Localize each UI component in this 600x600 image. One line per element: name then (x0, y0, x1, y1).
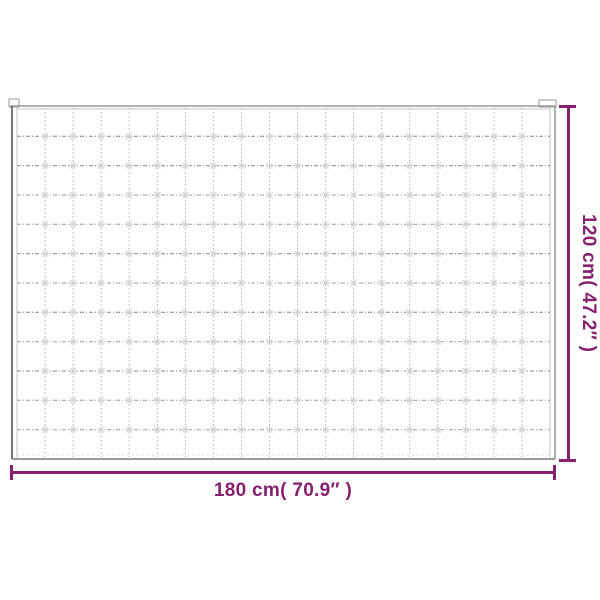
width-dimension-left-cap (10, 465, 13, 480)
width-dimension-line (10, 471, 556, 474)
quilted-blanket-illustration (8, 98, 557, 464)
height-dimension-bottom-cap (559, 459, 576, 462)
height-dimension-line (567, 105, 570, 462)
width-dimension-label: 180 cm( 70.9″ ) (10, 480, 556, 502)
height-dimension-label: 120 cm( 47.2″ ) (577, 105, 600, 462)
product-dimension-diagram: 180 cm( 70.9″ ) 120 cm( 47.2″ ) (0, 0, 600, 600)
width-dimension-right-cap (553, 465, 556, 480)
height-dimension-top-cap (559, 105, 576, 108)
